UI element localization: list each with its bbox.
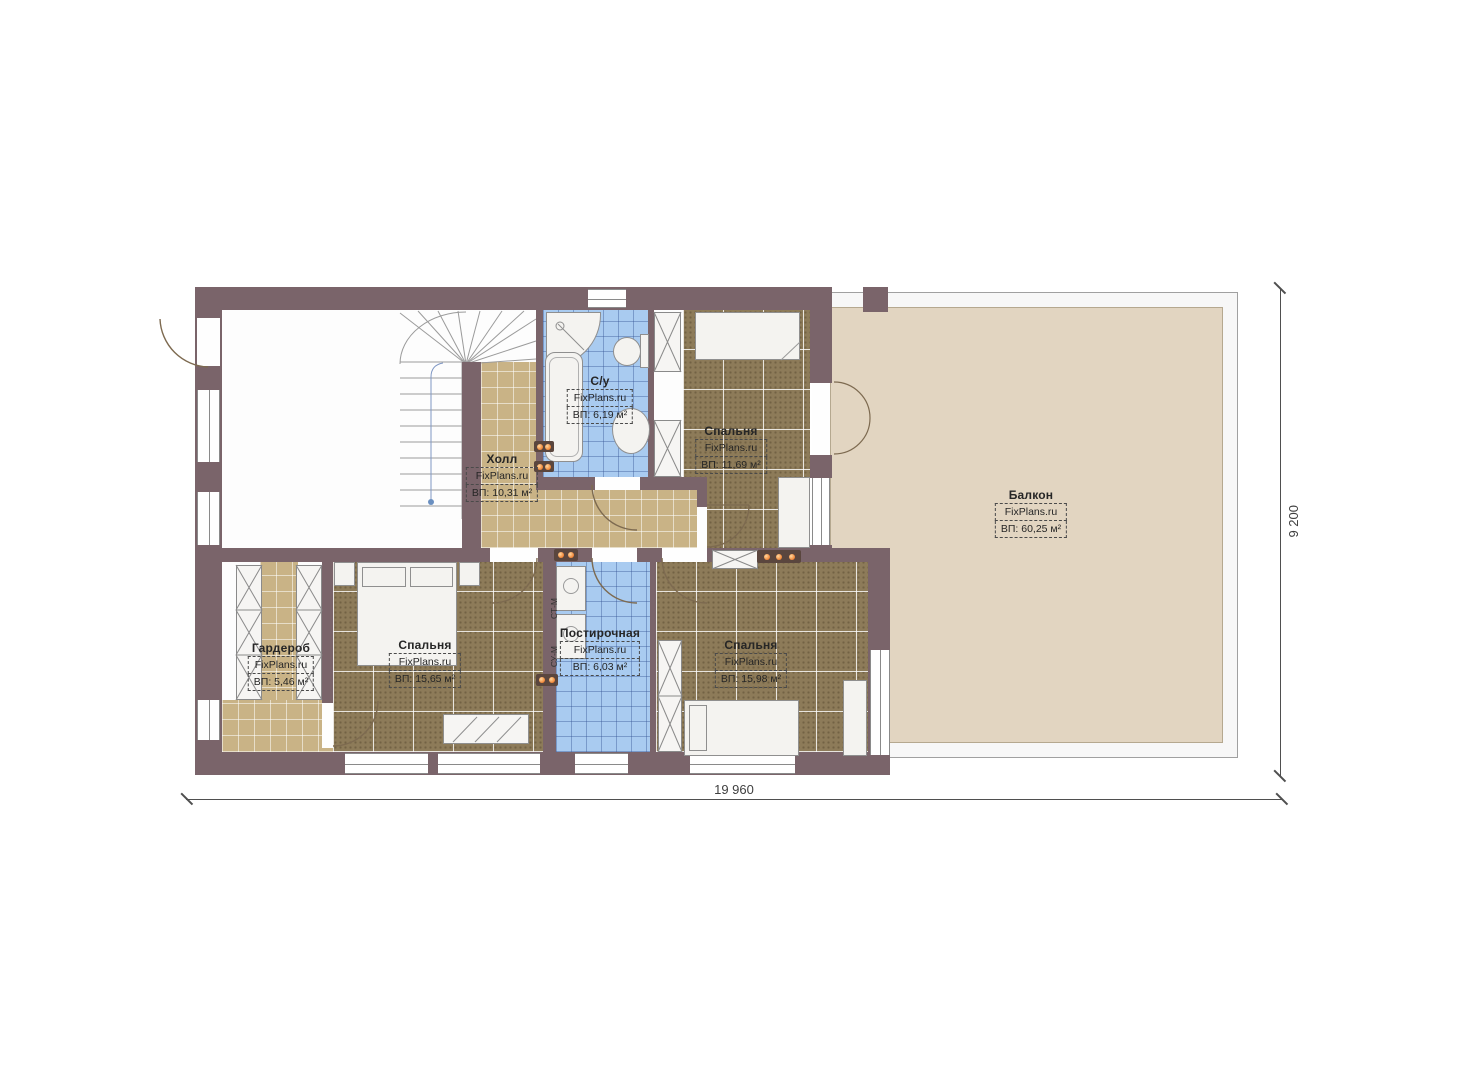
door-arc [592,558,638,604]
window [575,753,628,774]
socket-marker [757,550,801,563]
room-brand: FixPlans.ru [567,389,633,407]
window [345,753,428,774]
nightstand [334,562,355,586]
room-label-wardrobe: Гардероб FixPlans.ru ВП: 5,46 м² [248,641,314,691]
room-name: С/у [567,374,633,388]
closet [712,550,758,569]
room-area: ВП: 10,31 м² [466,485,538,502]
washer-label: СТ-М [549,598,559,619]
window [197,492,220,545]
window [870,650,890,755]
window [690,753,795,774]
door-arc [333,701,380,748]
room-area: ВП: 6,19 м² [567,407,633,424]
room-label-balcony: Балкон FixPlans.ru ВП: 60,25 м² [995,488,1067,538]
balcony-door-opening [812,383,830,455]
dimension-line-width [186,799,1282,800]
room-brand: FixPlans.ru [466,467,538,485]
pillow [410,567,453,587]
window [438,753,540,774]
room-area: ВП: 15,98 м² [715,671,787,688]
toilet-tank [640,334,649,368]
window [812,478,830,545]
room-label-bathroom: С/у FixPlans.ru ВП: 6,19 м² [567,374,633,424]
socket-marker [536,674,558,686]
dresser [778,477,810,548]
room-area: ВП: 60,25 м² [995,521,1067,538]
room-name: Спальня [389,638,461,652]
room-name: Постирочная [560,626,640,640]
radiator [443,714,529,744]
wall-wardrobe-right [322,560,333,703]
door-arc [156,318,208,370]
toilet-bowl [613,337,641,366]
room-area: ВП: 15,65 м² [389,671,461,688]
door-arc [705,503,751,549]
room-brand: FixPlans.ru [248,656,314,674]
dimension-height-label: 9 200 [1286,505,1301,538]
socket-marker [554,549,578,561]
window [588,289,626,308]
room-name: Балкон [995,488,1067,502]
window [197,700,220,740]
nightstand [459,562,480,586]
room-name: Гардероб [248,641,314,655]
room-brand: FixPlans.ru [389,653,461,671]
wardrobe-tile-bottom [222,700,333,752]
room-brand: FixPlans.ru [715,653,787,671]
room-label-hall: Холл FixPlans.ru ВП: 10,31 м² [466,452,538,502]
room-brand: FixPlans.ru [995,503,1067,521]
wall-top [195,287,832,310]
window [197,390,220,462]
closet [658,640,682,752]
wall-balcony-lower [810,545,832,562]
desk [843,680,867,756]
closet [654,420,681,477]
dimension-width-label: 19 960 [186,782,1282,797]
room-label-laundry: Постирочная FixPlans.ru ВП: 6,03 м² [560,626,640,676]
room-name: Холл [466,452,538,466]
door-opening [322,703,333,748]
socket-marker [534,441,554,452]
wall-laundry-right [650,560,656,752]
bed-fold [695,312,800,360]
pillow [362,567,406,587]
closet [654,312,681,372]
wall [863,287,888,312]
room-area: ВП: 5,46 м² [248,674,314,691]
wall-balcony-mid [810,455,832,478]
wall-balcony-upper [810,287,832,383]
pillow [689,705,707,751]
room-name: Спальня [715,638,787,652]
room-brand: FixPlans.ru [695,439,767,457]
wall-left-lower [195,548,222,775]
floor-plan: СТ-М СУ-М Холл FixPlans.ru ВП: 10,31 м² … [0,0,1474,1080]
room-label-bedroom-right: Спальня FixPlans.ru ВП: 15,98 м² [715,638,787,688]
dryer-label: СУ-М [549,646,559,667]
room-area: ВП: 11,69 м² [695,457,767,474]
room-brand: FixPlans.ru [560,641,640,659]
room-label-bedroom-top: Спальня FixPlans.ru ВП: 11,69 м² [695,424,767,474]
room-area: ВП: 6,03 м² [560,659,640,676]
door-arc [492,558,538,604]
room-name: Спальня [695,424,767,438]
balcony-double-door-arc [832,381,872,455]
door-arc [592,485,638,531]
room-label-bedroom-left: Спальня FixPlans.ru ВП: 15,65 м² [389,638,461,688]
door-arc [662,558,708,604]
dimension-line-height [1280,288,1281,776]
washing-machine-door-icon [563,578,579,594]
